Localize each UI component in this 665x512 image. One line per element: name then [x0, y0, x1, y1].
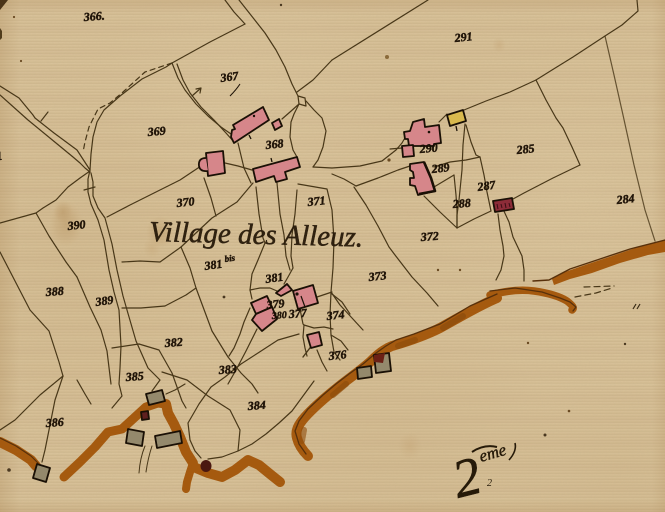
svg-text:372: 372	[419, 229, 439, 244]
svg-text:381: 381	[202, 257, 223, 274]
svg-text:370: 370	[175, 194, 195, 210]
svg-text:382: 382	[163, 335, 183, 350]
svg-text:288: 288	[451, 196, 471, 211]
svg-text:389: 389	[93, 293, 114, 310]
svg-text:384: 384	[246, 398, 266, 413]
svg-text:bis: bis	[224, 253, 236, 264]
svg-text:383: 383	[217, 362, 237, 377]
svg-text:376: 376	[327, 347, 347, 363]
svg-text:380: 380	[270, 310, 287, 322]
svg-text:377: 377	[287, 306, 308, 321]
svg-text:385: 385	[124, 369, 144, 384]
svg-text:291: 291	[453, 29, 473, 45]
svg-text:2: 2	[487, 478, 492, 489]
svg-text:371: 371	[306, 193, 326, 209]
svg-text:388: 388	[44, 284, 64, 299]
svg-text:290: 290	[418, 140, 438, 156]
svg-text:390: 390	[66, 217, 86, 233]
svg-text:285: 285	[515, 141, 535, 157]
svg-text:368: 368	[264, 136, 284, 152]
svg-text:287: 287	[475, 177, 497, 194]
svg-text:366.: 366.	[82, 9, 105, 25]
svg-text:386: 386	[44, 415, 64, 430]
svg-text:284: 284	[615, 191, 635, 207]
svg-text:373: 373	[367, 268, 387, 284]
svg-text:374: 374	[325, 307, 345, 323]
svg-text:369: 369	[146, 123, 166, 139]
svg-text:381: 381	[263, 270, 284, 287]
svg-text:Village des Alleuz.: Village des Alleuz.	[149, 216, 364, 254]
svg-text:289: 289	[430, 160, 450, 176]
svg-text:367: 367	[218, 68, 240, 85]
